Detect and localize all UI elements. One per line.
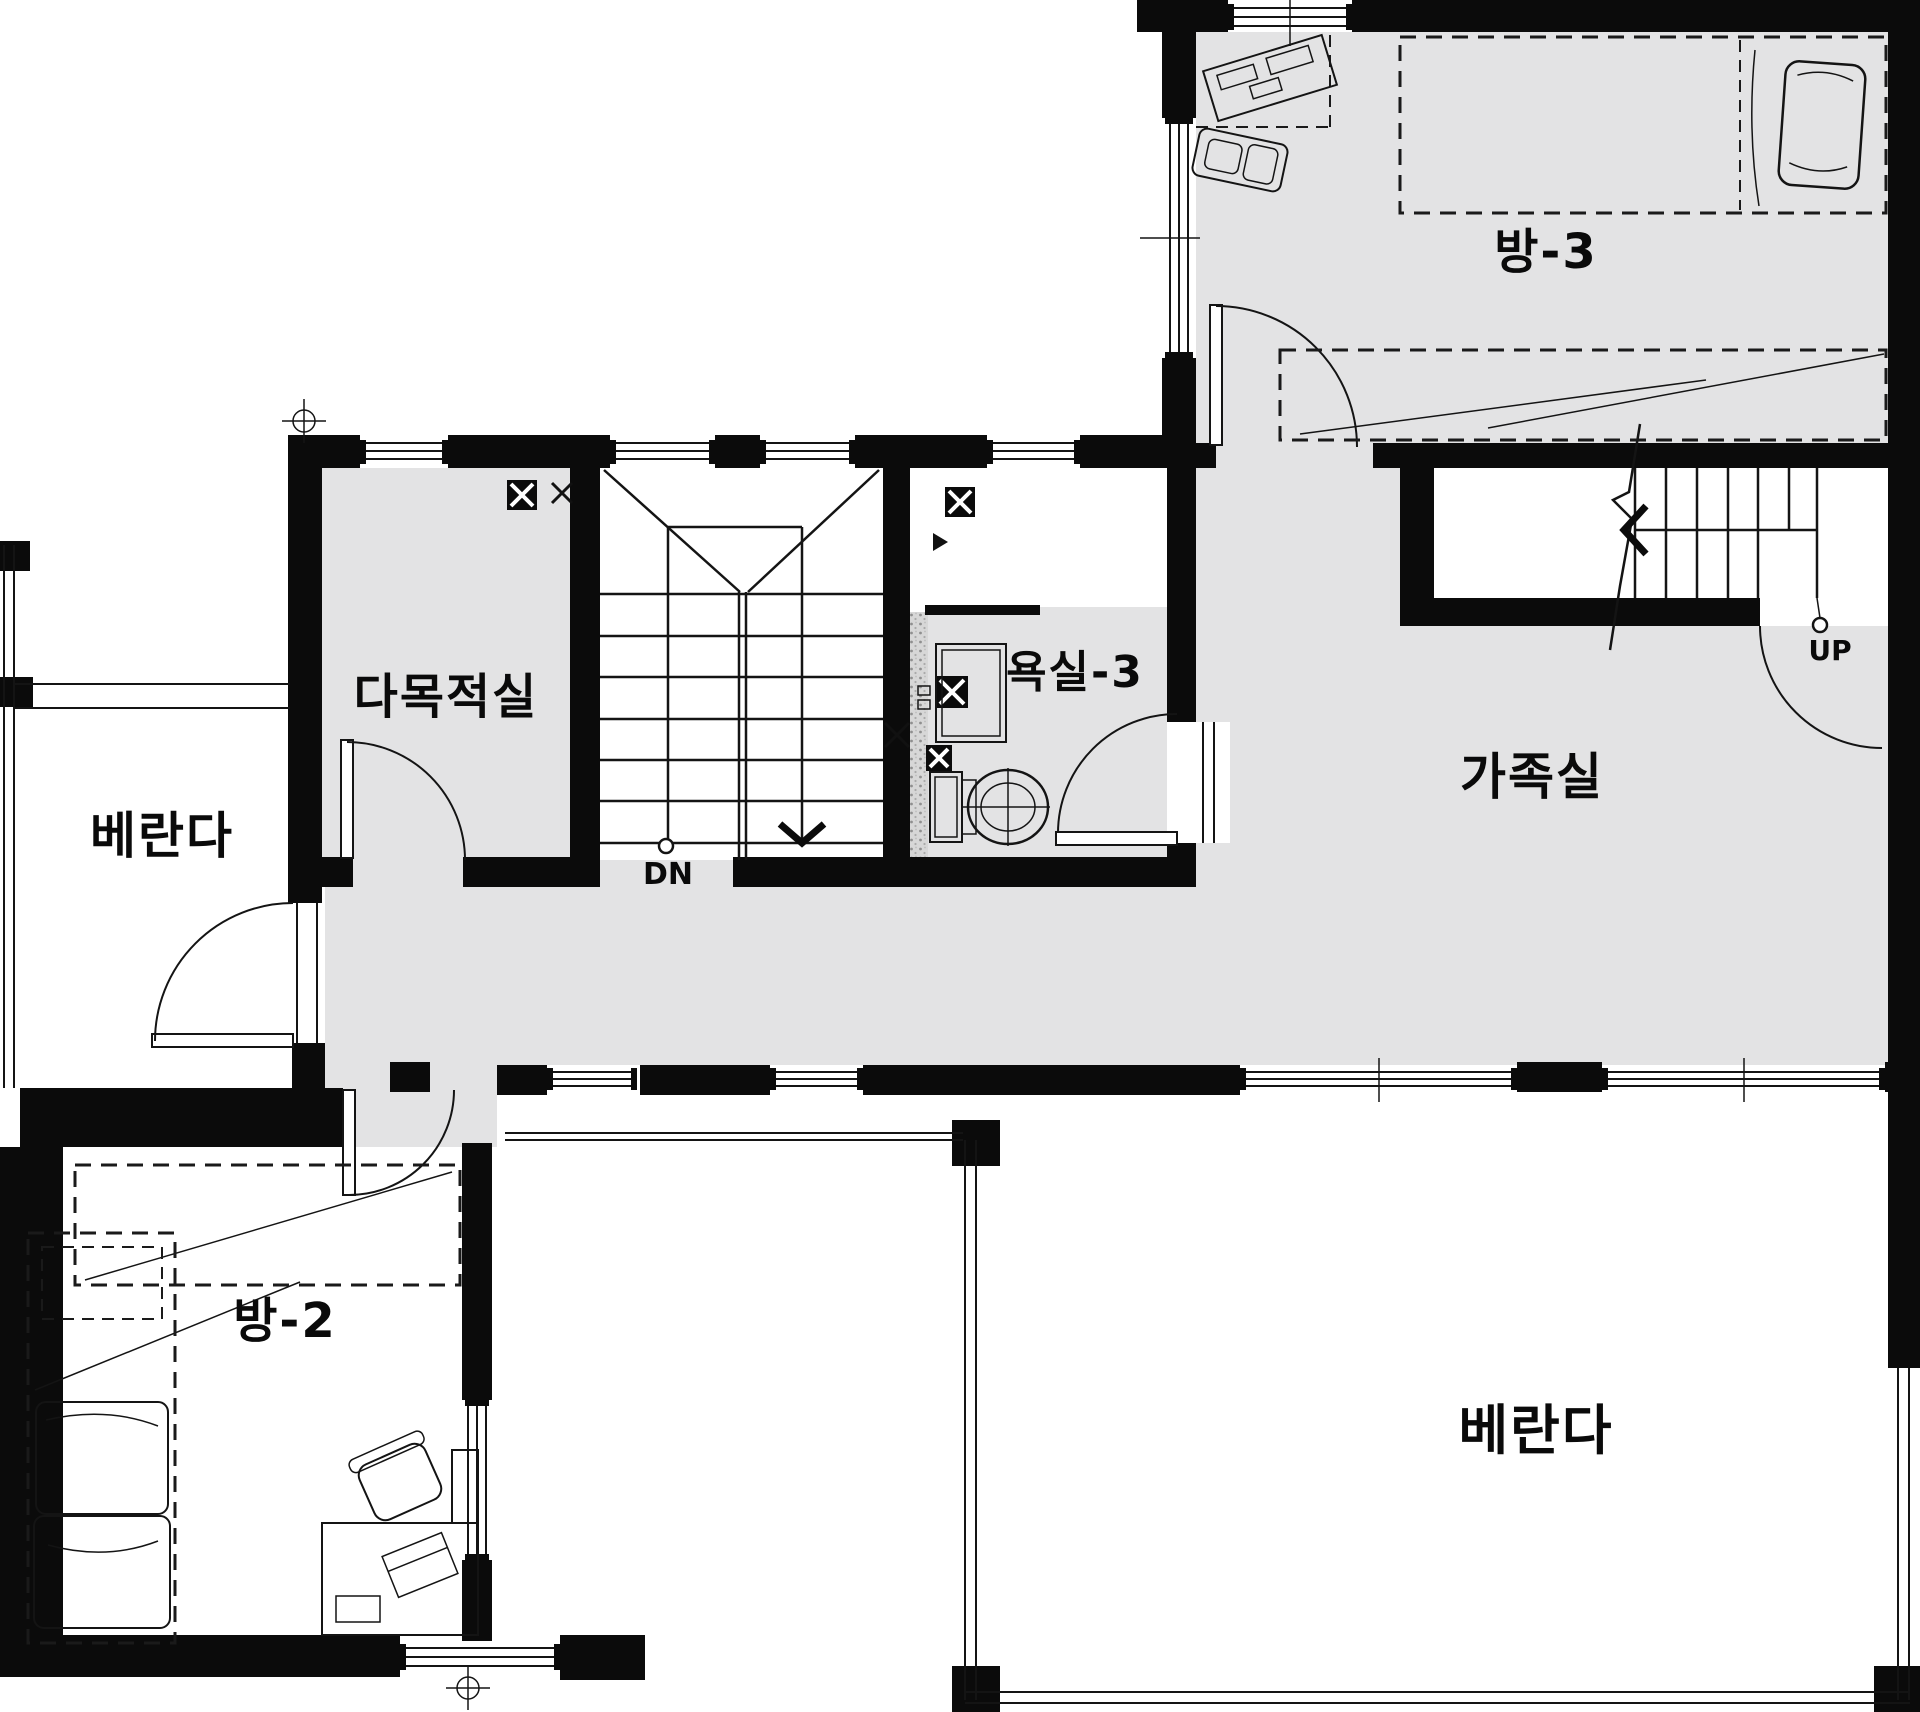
room-2-label: 방-2 <box>233 1293 336 1349</box>
multipurpose-label: 다목적실 <box>354 669 539 725</box>
veranda-bottom-label: 베란다 <box>1458 1399 1613 1462</box>
column-marker-icon <box>926 745 952 771</box>
stair-newel-icon <box>659 839 673 853</box>
window <box>770 1066 863 1092</box>
window <box>400 1641 560 1673</box>
tile-hatch-strip <box>910 612 928 860</box>
hall-floor <box>325 887 1888 1065</box>
window <box>760 437 855 466</box>
window <box>360 437 448 466</box>
chair-icon <box>347 1429 449 1525</box>
desk-icon <box>322 1450 478 1635</box>
stair-down-label: DN <box>643 857 693 892</box>
window <box>987 437 1080 466</box>
room-3-label: 방-3 <box>1494 224 1597 280</box>
stair-up-well <box>1434 468 1888 598</box>
window <box>547 1066 637 1092</box>
room2-furniture <box>28 1165 478 1643</box>
column-marker-icon <box>945 487 975 517</box>
closet-dashed <box>35 1165 460 1390</box>
window <box>610 437 715 466</box>
room3-door-floor <box>1216 443 1373 468</box>
bathroom-3-label: 욕실-3 <box>1006 647 1144 698</box>
family-room-label: 가족실 <box>1460 748 1604 806</box>
stair-up-label: UP <box>1808 634 1851 667</box>
window <box>1140 118 1200 358</box>
column-marker-icon <box>507 480 537 510</box>
stair-newel-icon <box>1813 618 1827 632</box>
floor-plan-page: DN UP <box>0 0 1920 1712</box>
veranda-left-label: 베란다 <box>90 807 234 865</box>
floor-plan-drawing: DN UP <box>0 0 1920 1712</box>
multipurpose-floor <box>322 468 570 857</box>
column-marker-icon <box>936 676 968 708</box>
multipurpose-door-floor <box>353 857 463 887</box>
